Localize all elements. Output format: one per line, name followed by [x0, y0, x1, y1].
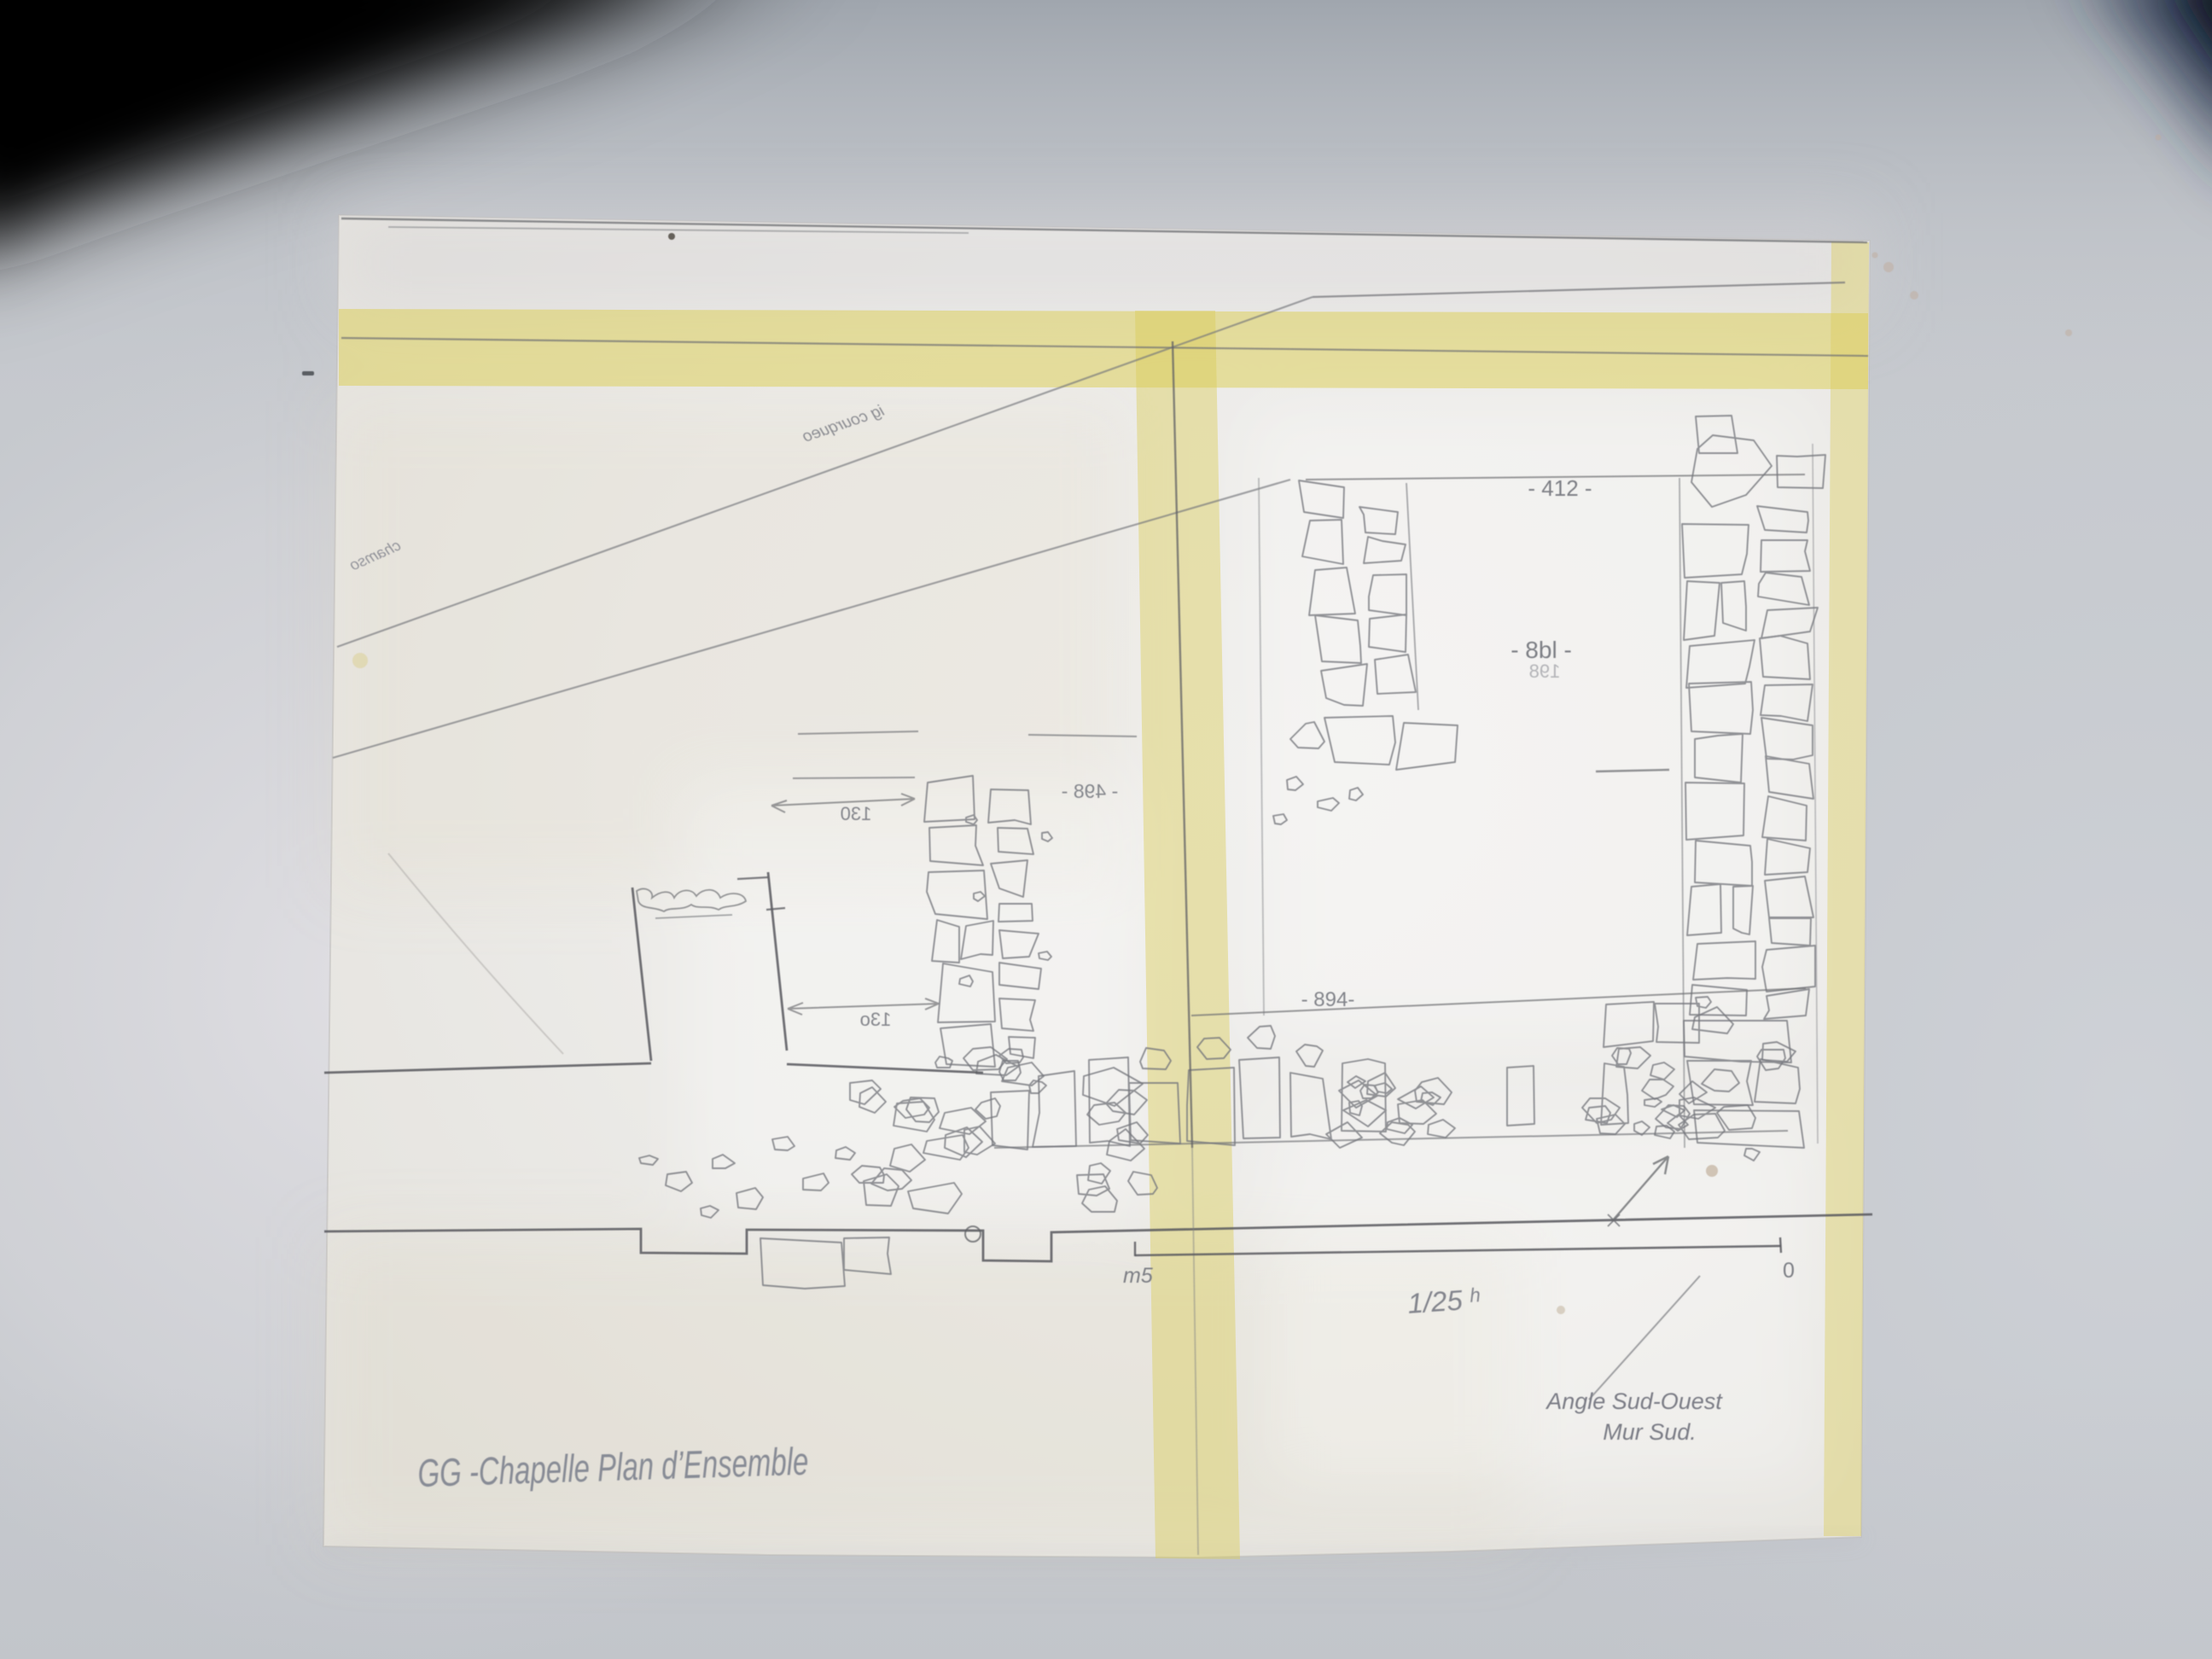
svg-text:- 498 -: - 498 - — [1062, 780, 1118, 802]
svg-text:13o: 13o — [860, 1009, 892, 1030]
svg-text:198: 198 — [1529, 661, 1561, 682]
svg-text:0: 0 — [1783, 1259, 1795, 1283]
svg-text:- 412 -: - 412 - — [1528, 475, 1592, 501]
svg-text:Mur Sud.: Mur Sud. — [1603, 1419, 1697, 1445]
svg-text:130: 130 — [841, 803, 872, 824]
svg-text:m5: m5 — [1123, 1264, 1153, 1288]
svg-text:Angle Sud-Ouest: Angle Sud-Ouest — [1545, 1388, 1723, 1414]
svg-text:- 8bl -: - 8bl - — [1511, 637, 1572, 663]
svg-text:1/25 ʰ: 1/25 ʰ — [1406, 1283, 1481, 1319]
svg-text:- 894-: - 894- — [1301, 988, 1355, 1011]
